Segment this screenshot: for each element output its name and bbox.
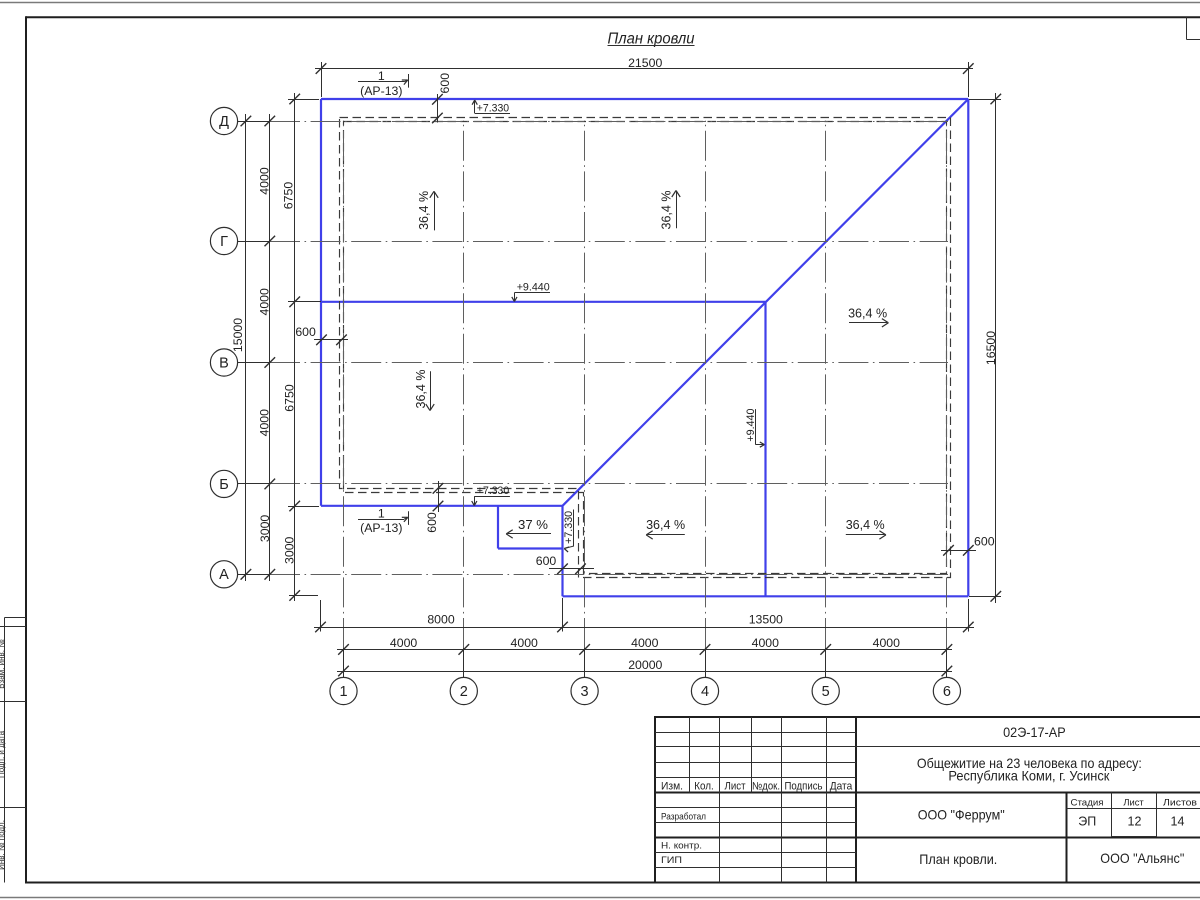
svg-text:3000: 3000	[258, 515, 272, 543]
svg-text:02Э-17-АР: 02Э-17-АР	[1003, 724, 1066, 740]
svg-text:36,4 %: 36,4 %	[848, 305, 887, 320]
svg-text:6750: 6750	[282, 182, 296, 210]
svg-text:(АР-13): (АР-13)	[360, 521, 402, 535]
svg-text:Стадия: Стадия	[1071, 797, 1104, 808]
svg-text:36,4 %: 36,4 %	[846, 517, 885, 532]
svg-text:Н. контр.: Н. контр.	[661, 840, 702, 851]
svg-text:Лист: Лист	[725, 780, 746, 792]
svg-text:+9.440: +9.440	[517, 281, 550, 293]
svg-text:1: 1	[378, 507, 385, 521]
svg-text:3: 3	[581, 684, 589, 700]
svg-text:14: 14	[1171, 814, 1185, 828]
svg-text:№док.: №док.	[752, 780, 780, 792]
svg-text:6: 6	[943, 684, 951, 700]
svg-text:36,4 %: 36,4 %	[646, 517, 685, 532]
svg-text:600: 600	[438, 73, 452, 94]
svg-text:36,4 %: 36,4 %	[413, 369, 428, 408]
svg-text:+7.330: +7.330	[477, 485, 509, 497]
svg-text:Разработал: Разработал	[661, 811, 706, 822]
svg-text:Б: Б	[219, 477, 229, 493]
svg-text:36,4 %: 36,4 %	[416, 190, 431, 229]
svg-text:4000: 4000	[511, 636, 539, 650]
svg-text:Подп. и дата: Подп. и дата	[0, 730, 6, 778]
svg-text:4000: 4000	[873, 636, 901, 650]
svg-text:Подпись: Подпись	[785, 780, 823, 792]
svg-text:Г: Г	[220, 234, 228, 250]
svg-text:4000: 4000	[631, 636, 659, 650]
svg-text:А: А	[219, 567, 229, 583]
svg-text:600: 600	[974, 534, 995, 548]
svg-text:6750: 6750	[283, 384, 297, 412]
svg-text:ЭП: ЭП	[1078, 815, 1096, 829]
svg-text:21500: 21500	[628, 56, 662, 70]
svg-text:1: 1	[339, 684, 347, 700]
svg-text:+7.330: +7.330	[563, 511, 575, 544]
svg-text:План кровли.: План кровли.	[919, 851, 997, 867]
svg-text:(АР-13): (АР-13)	[360, 84, 402, 98]
svg-text:600: 600	[295, 325, 316, 339]
svg-text:Республика Коми, г. Усинск: Республика Коми, г. Усинск	[948, 768, 1110, 784]
svg-text:4: 4	[701, 684, 709, 700]
svg-text:Д: Д	[219, 114, 229, 130]
svg-text:5: 5	[822, 684, 830, 700]
svg-text:2: 2	[460, 684, 468, 700]
svg-text:15000: 15000	[231, 318, 245, 352]
svg-text:ГИП: ГИП	[661, 854, 682, 865]
svg-text:600: 600	[536, 554, 557, 568]
svg-text:+9.440: +9.440	[745, 409, 757, 442]
svg-text:3000: 3000	[283, 536, 297, 564]
svg-text:Инв. № подл.: Инв. № подл.	[0, 820, 6, 870]
svg-text:Кол.: Кол.	[694, 780, 714, 792]
svg-text:4000: 4000	[390, 636, 418, 650]
svg-text:ООО "Альянс": ООО "Альянс"	[1100, 850, 1184, 866]
svg-text:37 %: 37 %	[518, 517, 548, 532]
svg-text:8000: 8000	[427, 612, 455, 626]
svg-text:4000: 4000	[752, 636, 780, 650]
svg-text:Лист: Лист	[1123, 797, 1144, 808]
svg-text:Листов: Листов	[1163, 796, 1197, 807]
svg-text:13500: 13500	[749, 612, 783, 626]
svg-text:600: 600	[425, 512, 439, 533]
svg-text:36,4 %: 36,4 %	[658, 190, 673, 229]
svg-text:ООО "Феррум": ООО "Феррум"	[918, 807, 1005, 823]
svg-text:4000: 4000	[257, 288, 271, 316]
svg-text:Дата: Дата	[830, 780, 853, 792]
svg-text:Взам. инв. №: Взам. инв. №	[0, 639, 6, 689]
svg-text:В: В	[219, 355, 229, 371]
svg-text:12: 12	[1128, 814, 1142, 828]
svg-text:16500: 16500	[984, 331, 998, 365]
svg-text:+7.330: +7.330	[477, 102, 509, 114]
svg-text:4000: 4000	[257, 409, 271, 437]
svg-text:4000: 4000	[257, 167, 271, 195]
svg-text:Изм.: Изм.	[661, 780, 683, 792]
svg-text:20000: 20000	[628, 658, 662, 672]
